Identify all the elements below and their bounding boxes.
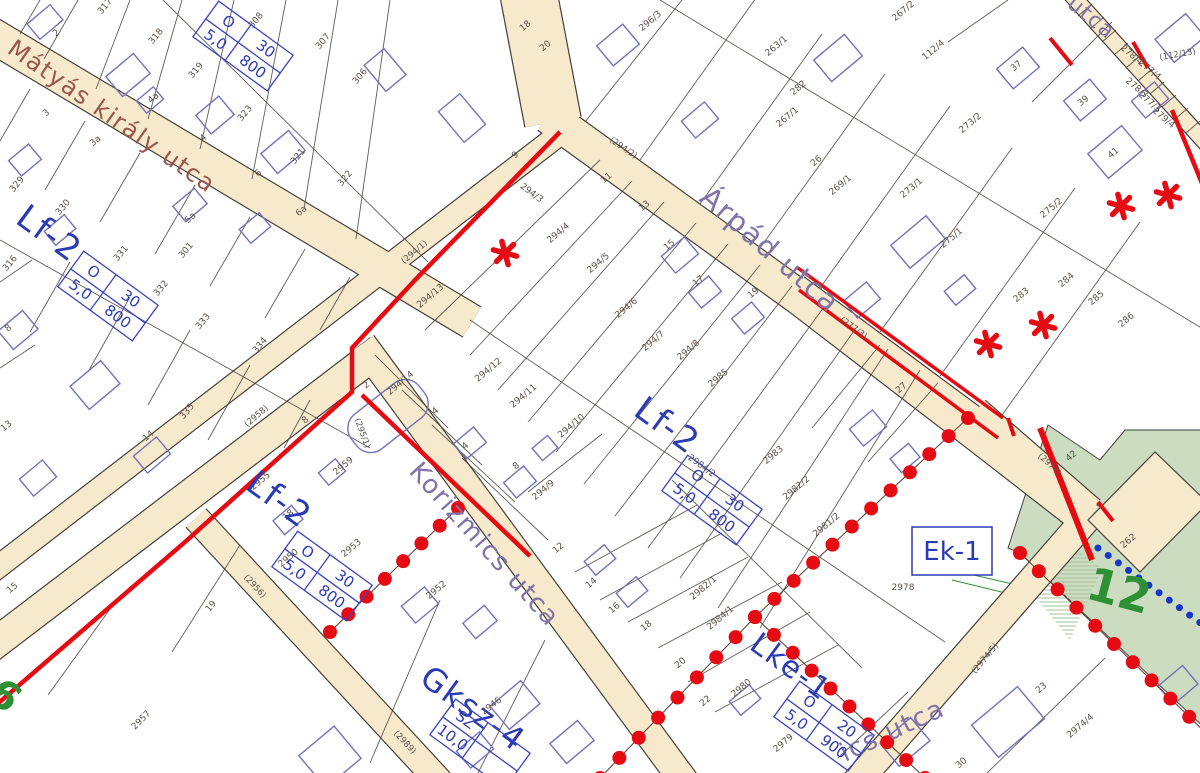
blue-dot — [1105, 552, 1112, 559]
blue-dot — [1156, 589, 1163, 596]
parcel-label: 2974/4 — [1065, 712, 1096, 740]
zone-code-label: Ek-1 — [923, 537, 980, 567]
parcel-boundary — [0, 345, 35, 368]
zone-code-label: Lke-1 — [743, 626, 838, 708]
red-dot — [899, 753, 913, 767]
parcel-label: 2978 — [892, 583, 915, 593]
parcel-label: 294/3 — [518, 182, 545, 206]
parcel-label: 2 — [361, 380, 372, 391]
parcel-label: 4 — [460, 441, 471, 453]
parcel-boundary — [820, 106, 950, 288]
parcel-label: 20 — [673, 656, 688, 671]
parcel-label: 317 — [96, 0, 115, 17]
parcel-label: 319 — [187, 61, 206, 81]
parcel-boundary — [265, 249, 305, 318]
zone-code-label: Lf-2 — [627, 389, 708, 463]
parcel-label: 2957 — [130, 709, 153, 732]
parcel-label: 2953 — [340, 537, 364, 559]
parcel-label: 263/1 — [764, 34, 790, 58]
red-dot — [612, 751, 626, 765]
parcel-label: 3 — [41, 108, 52, 119]
red-dot — [842, 699, 856, 713]
parcel-label: 12 — [551, 541, 566, 556]
parcel-label: 22 — [698, 694, 713, 709]
zoning-map: 31723183083193073064a332343a321632232933… — [0, 0, 1200, 773]
parcel-label: 2982/1 — [688, 574, 719, 602]
building — [463, 605, 497, 638]
parcel-boundary — [45, 121, 85, 190]
red-dot — [709, 650, 723, 664]
parcel-label: 23 — [1034, 681, 1049, 696]
parcel-label: 2981/2 — [811, 511, 842, 539]
red-dot — [1107, 637, 1121, 651]
red-dot — [729, 630, 743, 644]
red-dot — [748, 610, 762, 624]
parcel-label: 286 — [1117, 311, 1137, 330]
parcel-boundary — [575, 505, 697, 572]
asterisk-marker — [1109, 194, 1132, 217]
parcel-boundary — [210, 217, 250, 286]
parcel-boundary — [30, 262, 70, 332]
parcel-label: 273/2 — [958, 111, 984, 135]
parcel-boundary — [528, 223, 696, 422]
red-dot — [414, 536, 428, 550]
chain-line — [755, 418, 968, 617]
parcel-label: 2984/1 — [705, 604, 736, 632]
building — [70, 361, 120, 410]
building — [584, 545, 615, 576]
red-dot — [1182, 710, 1196, 724]
parcel-label: 275/2 — [1039, 196, 1065, 220]
parcel-label: 8 — [511, 461, 522, 473]
building — [891, 216, 946, 269]
parcel-boundary — [940, 188, 1075, 376]
building — [9, 144, 42, 176]
zone-code-label: Gksz-4 — [413, 658, 533, 760]
parcel-label: 15 — [5, 581, 20, 596]
parcel-label: 294/8 — [676, 338, 703, 363]
parcel-label: 267/2 — [891, 0, 917, 24]
zone-code-label: Lf-2 — [239, 463, 320, 537]
red-dot — [1088, 619, 1102, 633]
building — [972, 687, 1045, 758]
building — [681, 102, 718, 138]
parcel-boundary — [44, 0, 78, 59]
parcel-label: 294/9 — [531, 478, 558, 503]
parcel-boundary — [948, 0, 1008, 42]
parcel-boundary — [356, 0, 390, 239]
parcel-label: 2983 — [762, 444, 786, 466]
building — [438, 94, 485, 143]
building — [364, 49, 406, 92]
red-dot — [1051, 582, 1065, 596]
parcel-label: 294/10 — [556, 412, 587, 440]
parcel-label: 19 — [204, 599, 219, 614]
building — [532, 435, 558, 460]
red-dot — [1163, 692, 1177, 706]
zone-sign-mode: O — [218, 11, 238, 33]
parcel-label: 269/1 — [828, 173, 854, 197]
street-ref-labels: (294/1)(294/2)(2958)(2956)(2989)(295/1)(… — [241, 47, 1196, 756]
red-dot — [864, 501, 878, 515]
parcel-label: 318 — [147, 27, 166, 47]
parcel-boundary — [585, 0, 690, 122]
blue-dot — [1186, 612, 1193, 619]
building — [19, 460, 56, 496]
red-dot — [396, 554, 410, 568]
parcel-label: 18 — [639, 619, 654, 634]
zone-sign-mode: O — [297, 541, 317, 563]
parcel-label: 329 — [8, 175, 27, 195]
parcel-label: 323 — [236, 104, 255, 124]
red-dot — [1013, 546, 1027, 560]
parcel-label: 16 — [607, 601, 622, 616]
parcel-label: 3a — [88, 134, 103, 149]
red-dot — [323, 625, 337, 639]
parcel-label: 283 — [1012, 286, 1032, 305]
ek-zone: Ek-1 — [912, 527, 992, 575]
parcel-label: 17 — [691, 274, 706, 289]
red-dot — [806, 556, 820, 570]
red-line — [1050, 38, 1072, 65]
parcel-label: 14 — [584, 576, 599, 591]
street-fills — [0, 0, 1200, 773]
parcel-label: 267/1 — [775, 105, 801, 129]
red-dot — [825, 538, 839, 552]
parcel-label: 13 — [0, 419, 14, 434]
parcel-boundary — [498, 202, 664, 390]
red-line — [362, 395, 530, 556]
parcel-boundary — [20, 0, 40, 34]
parcel-label: 301 — [177, 241, 196, 261]
red-dot — [378, 572, 392, 586]
parcel-label: 332 — [152, 279, 171, 299]
parcel-boundary — [304, 0, 338, 209]
parcel-boundary — [812, 345, 880, 428]
red-dot — [884, 483, 898, 497]
building — [196, 96, 234, 134]
parcel-label: 30 — [954, 756, 969, 771]
street-ref-label: (112/13) — [1159, 47, 1197, 63]
red-dot — [922, 447, 936, 461]
red-dot — [1126, 655, 1140, 669]
street-name: Mátyás király utca — [3, 34, 221, 199]
red-dot — [690, 670, 704, 684]
parcel-label: 308 — [247, 11, 266, 31]
red-dot — [1145, 673, 1159, 687]
parcel-label: 112/4 — [921, 38, 948, 63]
parcel-label: 331 — [112, 244, 131, 264]
red-dot — [787, 574, 801, 588]
map-canvas[interactable]: 31723183083193073064a332343a321632232933… — [0, 0, 1200, 773]
asterisk-marker — [1156, 183, 1179, 206]
building — [616, 577, 647, 608]
asterisk-marker — [493, 241, 516, 264]
parcel-label: 273/1 — [899, 176, 925, 200]
parcel-boundary — [172, 545, 240, 652]
parcel-label: 282 — [789, 79, 809, 98]
zone-sign: O5,030800 — [58, 251, 158, 341]
zone-sign: O5,030800 — [193, 1, 293, 91]
street-ref-label: (295/1) — [352, 417, 372, 450]
parcel-boundary — [148, 330, 190, 405]
building — [299, 726, 361, 773]
red-dot — [360, 590, 374, 604]
zone-sign-mode: O — [83, 261, 103, 283]
building — [597, 24, 640, 66]
parcel-label: 284 — [1057, 271, 1077, 290]
parcel-label: 41 — [1106, 146, 1121, 161]
parcel-label: 2979 — [772, 732, 796, 755]
parcel-label: 294/6 — [614, 296, 641, 321]
red-dot — [767, 592, 781, 606]
parcel-label: 2982/2 — [781, 474, 812, 502]
parcel-label: 294/5 — [586, 251, 612, 275]
parcel-label: 294/12 — [473, 356, 504, 384]
parcel-label: 322 — [336, 169, 355, 189]
parcel-label: 39 — [1076, 94, 1091, 109]
building — [550, 720, 594, 763]
building — [814, 34, 863, 81]
red-dot — [961, 411, 975, 425]
parcel-label: 2980 — [730, 677, 754, 700]
street — [524, 0, 553, 122]
parcel-label: 26 — [809, 154, 824, 169]
red-dot — [671, 691, 685, 705]
parcel-label: 275/1 — [939, 226, 965, 250]
parcel-label: 15 — [662, 238, 677, 253]
building — [849, 410, 886, 446]
red-dot — [845, 520, 859, 534]
parcel-label: 2952 — [425, 579, 449, 601]
red-dot — [942, 429, 956, 443]
asterisk-marker — [976, 332, 999, 355]
parcel-boundary — [0, 89, 30, 141]
red-dot — [1032, 564, 1046, 578]
parcel-label: 294/4 — [546, 221, 573, 246]
building — [944, 275, 975, 306]
red-dot — [903, 465, 917, 479]
parcel-label: 333 — [194, 312, 213, 332]
blue-dot — [1176, 604, 1183, 611]
red-dot — [651, 711, 665, 725]
red-dot — [632, 731, 646, 745]
parcel-label: 37 — [1009, 59, 1024, 74]
blue-dot — [1095, 545, 1102, 552]
parcel-label: 296/3 — [638, 9, 664, 33]
parcel-label: 8 — [3, 323, 14, 335]
parcel-label: 294/11 — [508, 382, 539, 410]
parcel-boundary — [100, 153, 140, 222]
parcel-label: 294/7 — [641, 329, 667, 353]
building — [732, 302, 765, 334]
asterisk-marker — [1031, 313, 1054, 336]
blue-dot — [1166, 597, 1173, 604]
